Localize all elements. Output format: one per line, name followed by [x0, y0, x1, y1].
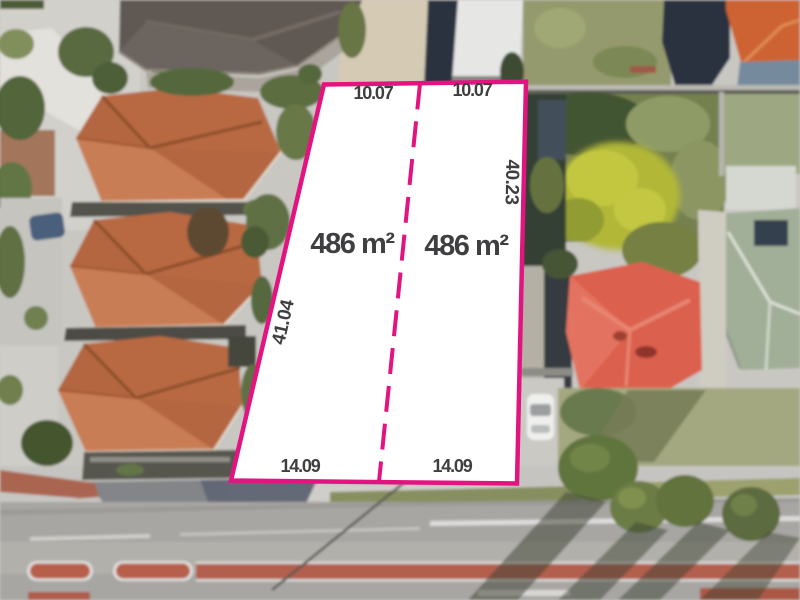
svg-text:14.09: 14.09 — [432, 456, 472, 476]
svg-text:486 m²: 486 m² — [424, 230, 509, 262]
svg-text:10.07: 10.07 — [353, 83, 393, 103]
svg-text:10.07: 10.07 — [452, 80, 492, 100]
svg-text:486 m²: 486 m² — [310, 228, 395, 260]
svg-text:14.09: 14.09 — [280, 456, 320, 476]
svg-text:40.23: 40.23 — [501, 159, 523, 204]
